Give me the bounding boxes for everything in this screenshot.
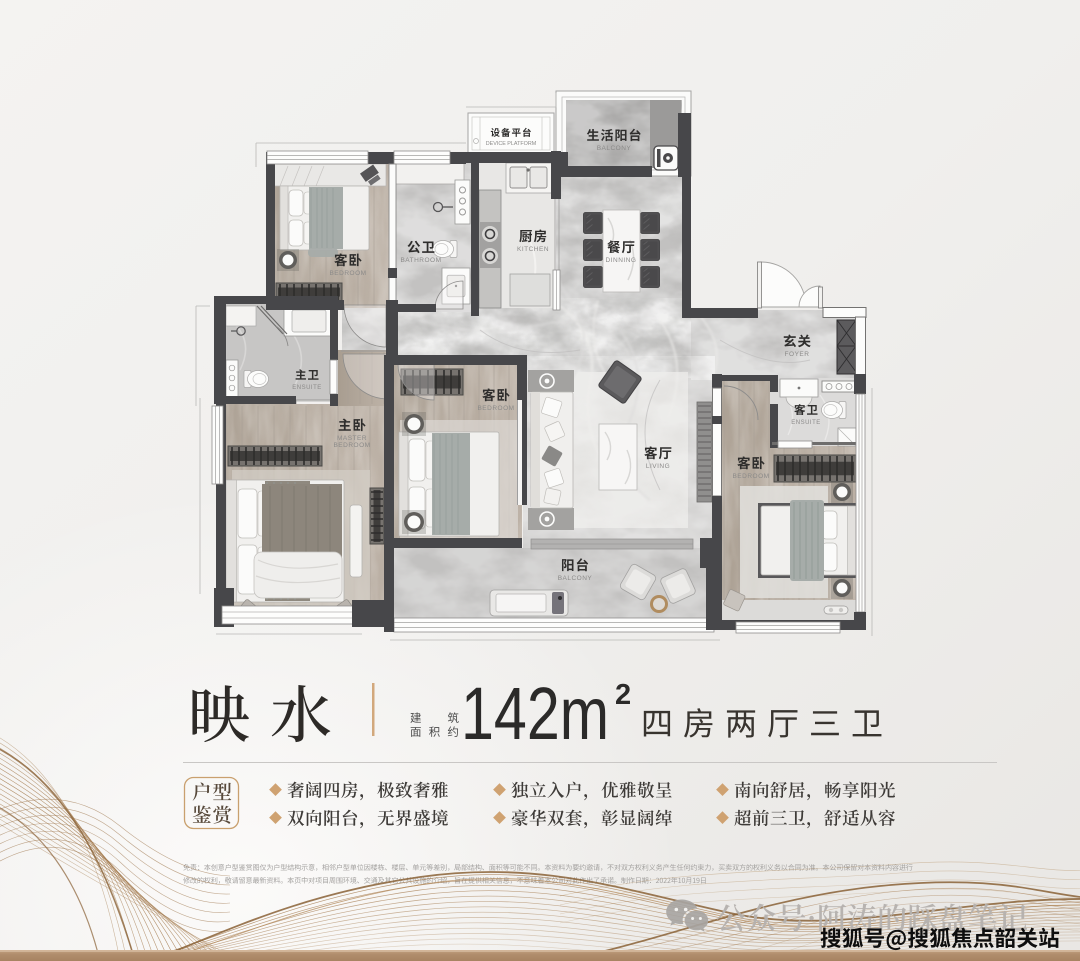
svg-text:BALCONY: BALCONY (597, 145, 632, 152)
svg-text:BEDROOM: BEDROOM (333, 442, 370, 449)
svg-text:LIVING: LIVING (646, 463, 670, 470)
svg-text:DINNING: DINNING (606, 257, 637, 264)
svg-text:DEVICE PLATFORM: DEVICE PLATFORM (486, 141, 537, 147)
svg-text:BALCONY: BALCONY (558, 575, 593, 582)
svg-text:BEDROOM: BEDROOM (477, 405, 514, 412)
svg-text:FOYER: FOYER (785, 351, 810, 358)
svg-text:2: 2 (615, 679, 631, 711)
svg-text:ENSUITE: ENSUITE (292, 385, 322, 391)
svg-text:BEDROOM: BEDROOM (732, 473, 769, 480)
svg-text:MASTER: MASTER (337, 435, 367, 442)
svg-text:BATHROOM: BATHROOM (400, 257, 441, 264)
svg-text:KITCHEN: KITCHEN (517, 246, 549, 253)
svg-text:142m: 142m (461, 673, 609, 756)
svg-text:BEDROOM: BEDROOM (329, 270, 366, 277)
svg-text:ENSUITE: ENSUITE (791, 420, 821, 426)
